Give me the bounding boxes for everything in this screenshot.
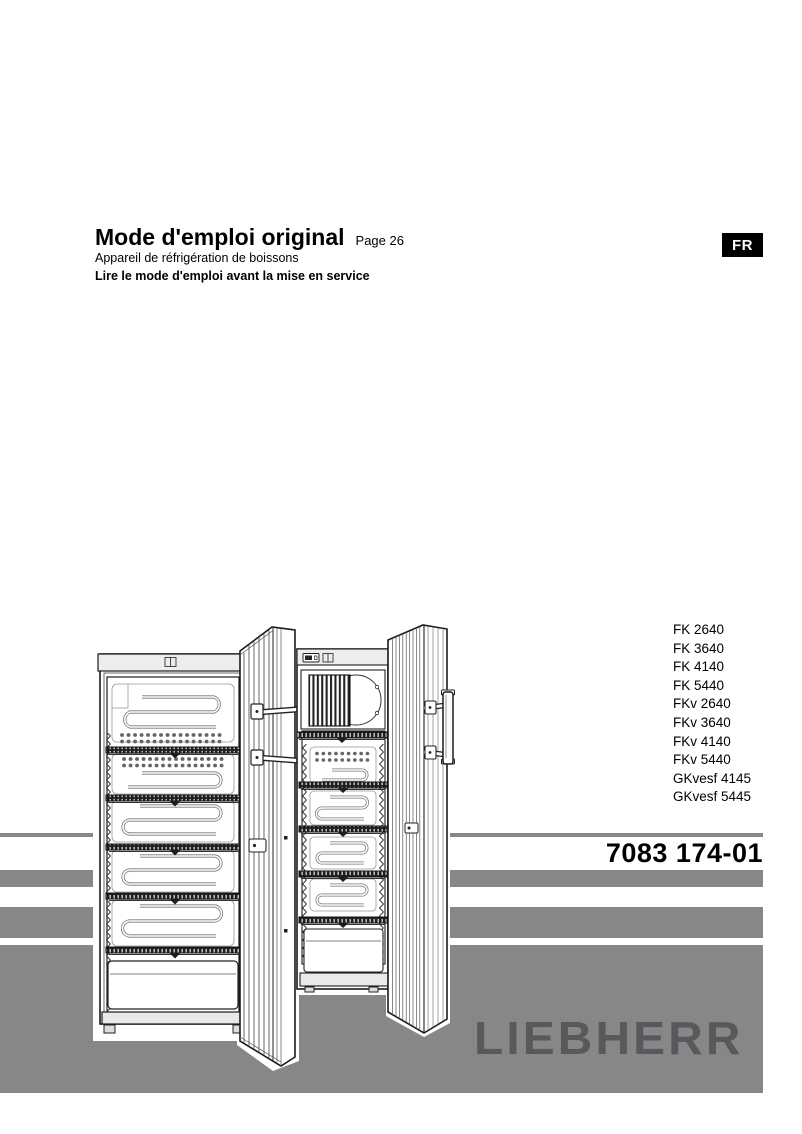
foot: [305, 987, 314, 992]
plinth: [300, 973, 388, 986]
refrigerators-illustration: [0, 0, 802, 1134]
bottom-compartment: [304, 929, 383, 972]
foot: [369, 987, 378, 992]
brand-logo: LIEBHERR: [474, 1015, 743, 1061]
shelf-ladder: [379, 744, 386, 960]
door-bracket: [249, 839, 266, 852]
manual-cover-page: Mode d'emploi original Page 26 Appareil …: [0, 0, 802, 1134]
door-bracket: [405, 823, 418, 833]
shelf-ladder: [303, 744, 310, 960]
foot: [104, 1025, 115, 1033]
plinth: [102, 1012, 248, 1024]
control-display-icon: [303, 654, 319, 663]
bottom-compartment: [108, 961, 238, 1009]
fridge-solid-door: [98, 654, 252, 1033]
cooling-unit: [301, 670, 385, 729]
open-door-glass: [388, 625, 455, 1033]
